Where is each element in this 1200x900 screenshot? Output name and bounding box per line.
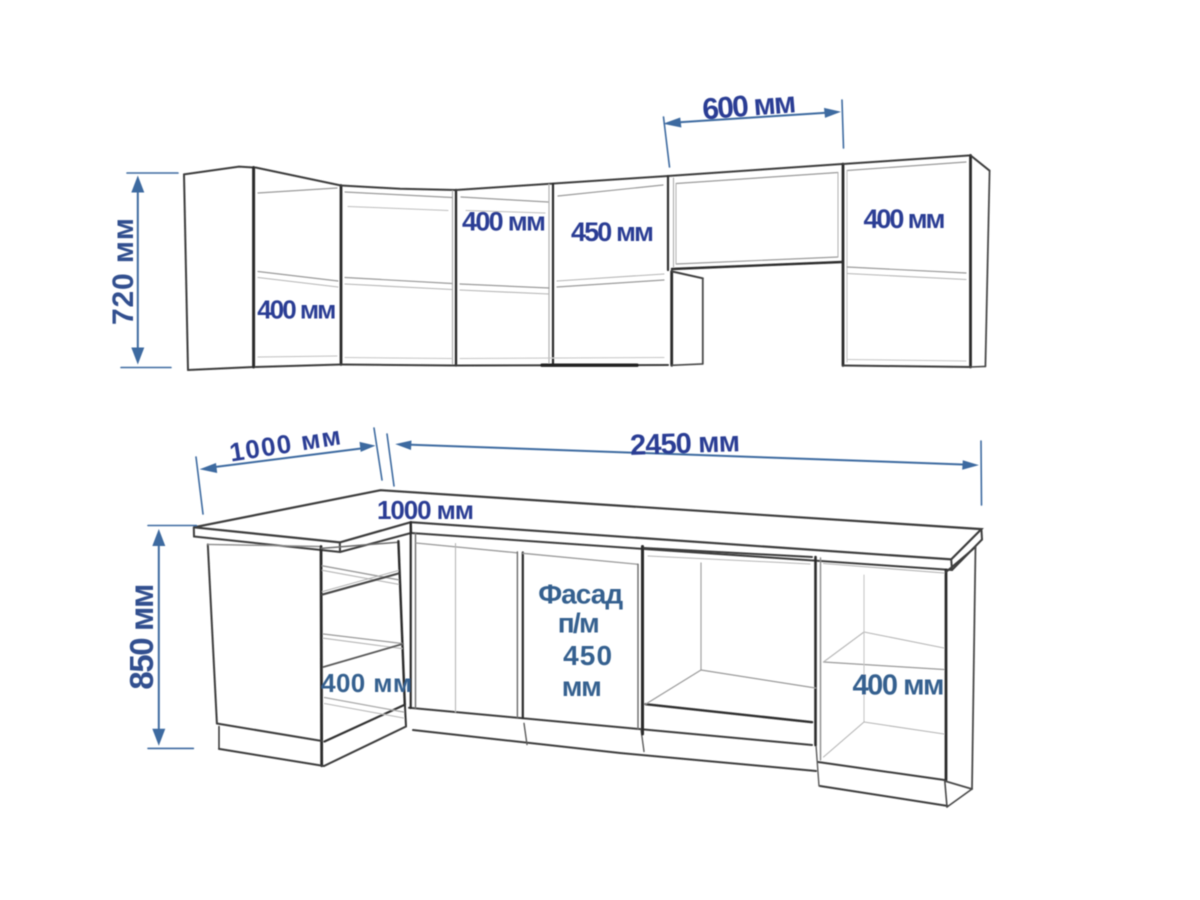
svg-text:2450 мм: 2450 мм xyxy=(630,426,741,462)
svg-text:п/м: п/м xyxy=(558,608,600,639)
svg-text:мм: мм xyxy=(562,671,602,702)
svg-text:400 мм: 400 мм xyxy=(462,207,546,237)
svg-text:400 мм: 400 мм xyxy=(257,295,336,325)
svg-text:720 мм: 720 мм xyxy=(107,218,140,325)
svg-text:450: 450 xyxy=(563,640,612,671)
svg-text:Фасад: Фасад xyxy=(538,579,623,610)
svg-text:450 мм: 450 мм xyxy=(571,217,654,247)
svg-text:400 мм: 400 мм xyxy=(864,204,946,234)
svg-text:400 мм: 400 мм xyxy=(853,670,945,702)
svg-text:1000 мм: 1000 мм xyxy=(377,495,474,525)
svg-text:400 мм: 400 мм xyxy=(321,668,412,698)
svg-text:850 мм: 850 мм xyxy=(123,584,160,690)
